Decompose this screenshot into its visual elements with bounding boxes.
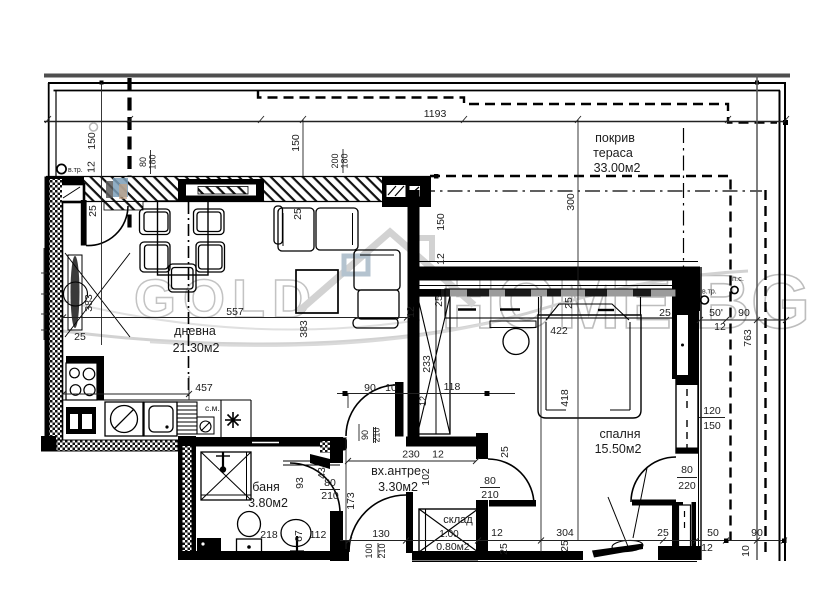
svg-text:150: 150 <box>290 134 302 152</box>
svg-text:дневна: дневна <box>174 324 216 338</box>
svg-text:90: 90 <box>364 382 376 394</box>
svg-text:120: 120 <box>703 405 721 417</box>
svg-text:150: 150 <box>703 420 721 432</box>
svg-text:150: 150 <box>86 132 98 150</box>
svg-text:422: 422 <box>550 325 568 337</box>
svg-text:210: 210 <box>377 543 387 558</box>
svg-text:12: 12 <box>405 306 417 318</box>
svg-text:п.с.: п.с. <box>732 274 744 283</box>
svg-text:12: 12 <box>86 161 98 173</box>
svg-text:12: 12 <box>491 527 503 539</box>
svg-text:25: 25 <box>87 205 99 217</box>
svg-text:180: 180 <box>148 154 158 169</box>
svg-text:210: 210 <box>321 490 339 502</box>
svg-text:67: 67 <box>293 530 305 542</box>
svg-text:90: 90 <box>738 307 750 319</box>
svg-text:баня: баня <box>252 480 280 494</box>
svg-text:383: 383 <box>83 294 95 312</box>
svg-text:25: 25 <box>499 446 511 458</box>
svg-text:25: 25 <box>498 543 510 555</box>
svg-text:25: 25 <box>433 295 445 307</box>
svg-text:150: 150 <box>435 213 447 231</box>
svg-text:12: 12 <box>435 253 447 265</box>
svg-text:200: 200 <box>330 153 340 168</box>
svg-text:90: 90 <box>751 527 763 539</box>
svg-text:3.80м2: 3.80м2 <box>248 496 288 510</box>
svg-text:763: 763 <box>742 329 754 347</box>
svg-text:130: 130 <box>372 528 390 540</box>
svg-text:180: 180 <box>340 153 350 168</box>
svg-text:112: 112 <box>310 529 327 541</box>
svg-text:210: 210 <box>372 427 382 442</box>
svg-text:10: 10 <box>385 382 397 394</box>
svg-text:0.80м2: 0.80м2 <box>436 541 470 553</box>
svg-text:25: 25 <box>659 307 671 319</box>
svg-text:102: 102 <box>420 468 432 486</box>
svg-text:100: 100 <box>364 543 374 558</box>
svg-text:12: 12 <box>714 321 726 333</box>
svg-text:25: 25 <box>74 331 86 343</box>
svg-text:304: 304 <box>556 527 574 539</box>
svg-text:218: 218 <box>260 529 278 541</box>
svg-text:90: 90 <box>360 430 370 440</box>
svg-text:233: 233 <box>421 355 433 373</box>
svg-text:тераса: тераса <box>593 146 633 160</box>
svg-text:3.30м2: 3.30м2 <box>378 480 418 494</box>
svg-text:80: 80 <box>138 157 148 167</box>
svg-text:173: 173 <box>345 492 357 510</box>
svg-text:557: 557 <box>226 306 244 318</box>
svg-text:вх.антре: вх.антре <box>371 464 421 478</box>
svg-text:210: 210 <box>481 489 499 501</box>
svg-text:25: 25 <box>563 297 575 309</box>
svg-text:спалня: спалня <box>600 427 641 441</box>
svg-text:93: 93 <box>294 477 306 489</box>
svg-text:300: 300 <box>565 193 577 211</box>
svg-text:80: 80 <box>484 475 496 487</box>
svg-text:383: 383 <box>298 320 310 338</box>
svg-text:1193: 1193 <box>424 108 447 120</box>
svg-text:в.тр.: в.тр. <box>68 167 83 174</box>
svg-text:с.м.: с.м. <box>205 403 220 413</box>
svg-text:15.50м2: 15.50м2 <box>595 442 642 456</box>
svg-text:в.тр.: в.тр. <box>702 289 717 296</box>
svg-text:склад: склад <box>443 514 473 526</box>
svg-text:25: 25 <box>559 540 571 552</box>
svg-text:50: 50 <box>707 527 719 539</box>
svg-text:21.30м2: 21.30м2 <box>173 341 220 355</box>
svg-text:220: 220 <box>678 480 696 492</box>
svg-text:457: 457 <box>195 382 213 394</box>
svg-text:10: 10 <box>740 545 752 557</box>
svg-text:25: 25 <box>657 527 669 539</box>
svg-text:1.00: 1.00 <box>439 529 459 540</box>
svg-text:12: 12 <box>701 542 713 554</box>
svg-text:12: 12 <box>432 449 444 461</box>
svg-text:118: 118 <box>444 381 461 393</box>
svg-text:12: 12 <box>418 396 428 406</box>
svg-text:покрив: покрив <box>595 131 635 145</box>
svg-text:25: 25 <box>292 208 304 220</box>
svg-text:418: 418 <box>559 389 571 407</box>
svg-text:80: 80 <box>681 464 693 476</box>
svg-text:230: 230 <box>402 449 420 461</box>
svg-text:50': 50' <box>709 307 723 319</box>
svg-text:80: 80 <box>324 477 336 489</box>
svg-text:33.00м2: 33.00м2 <box>594 161 641 175</box>
